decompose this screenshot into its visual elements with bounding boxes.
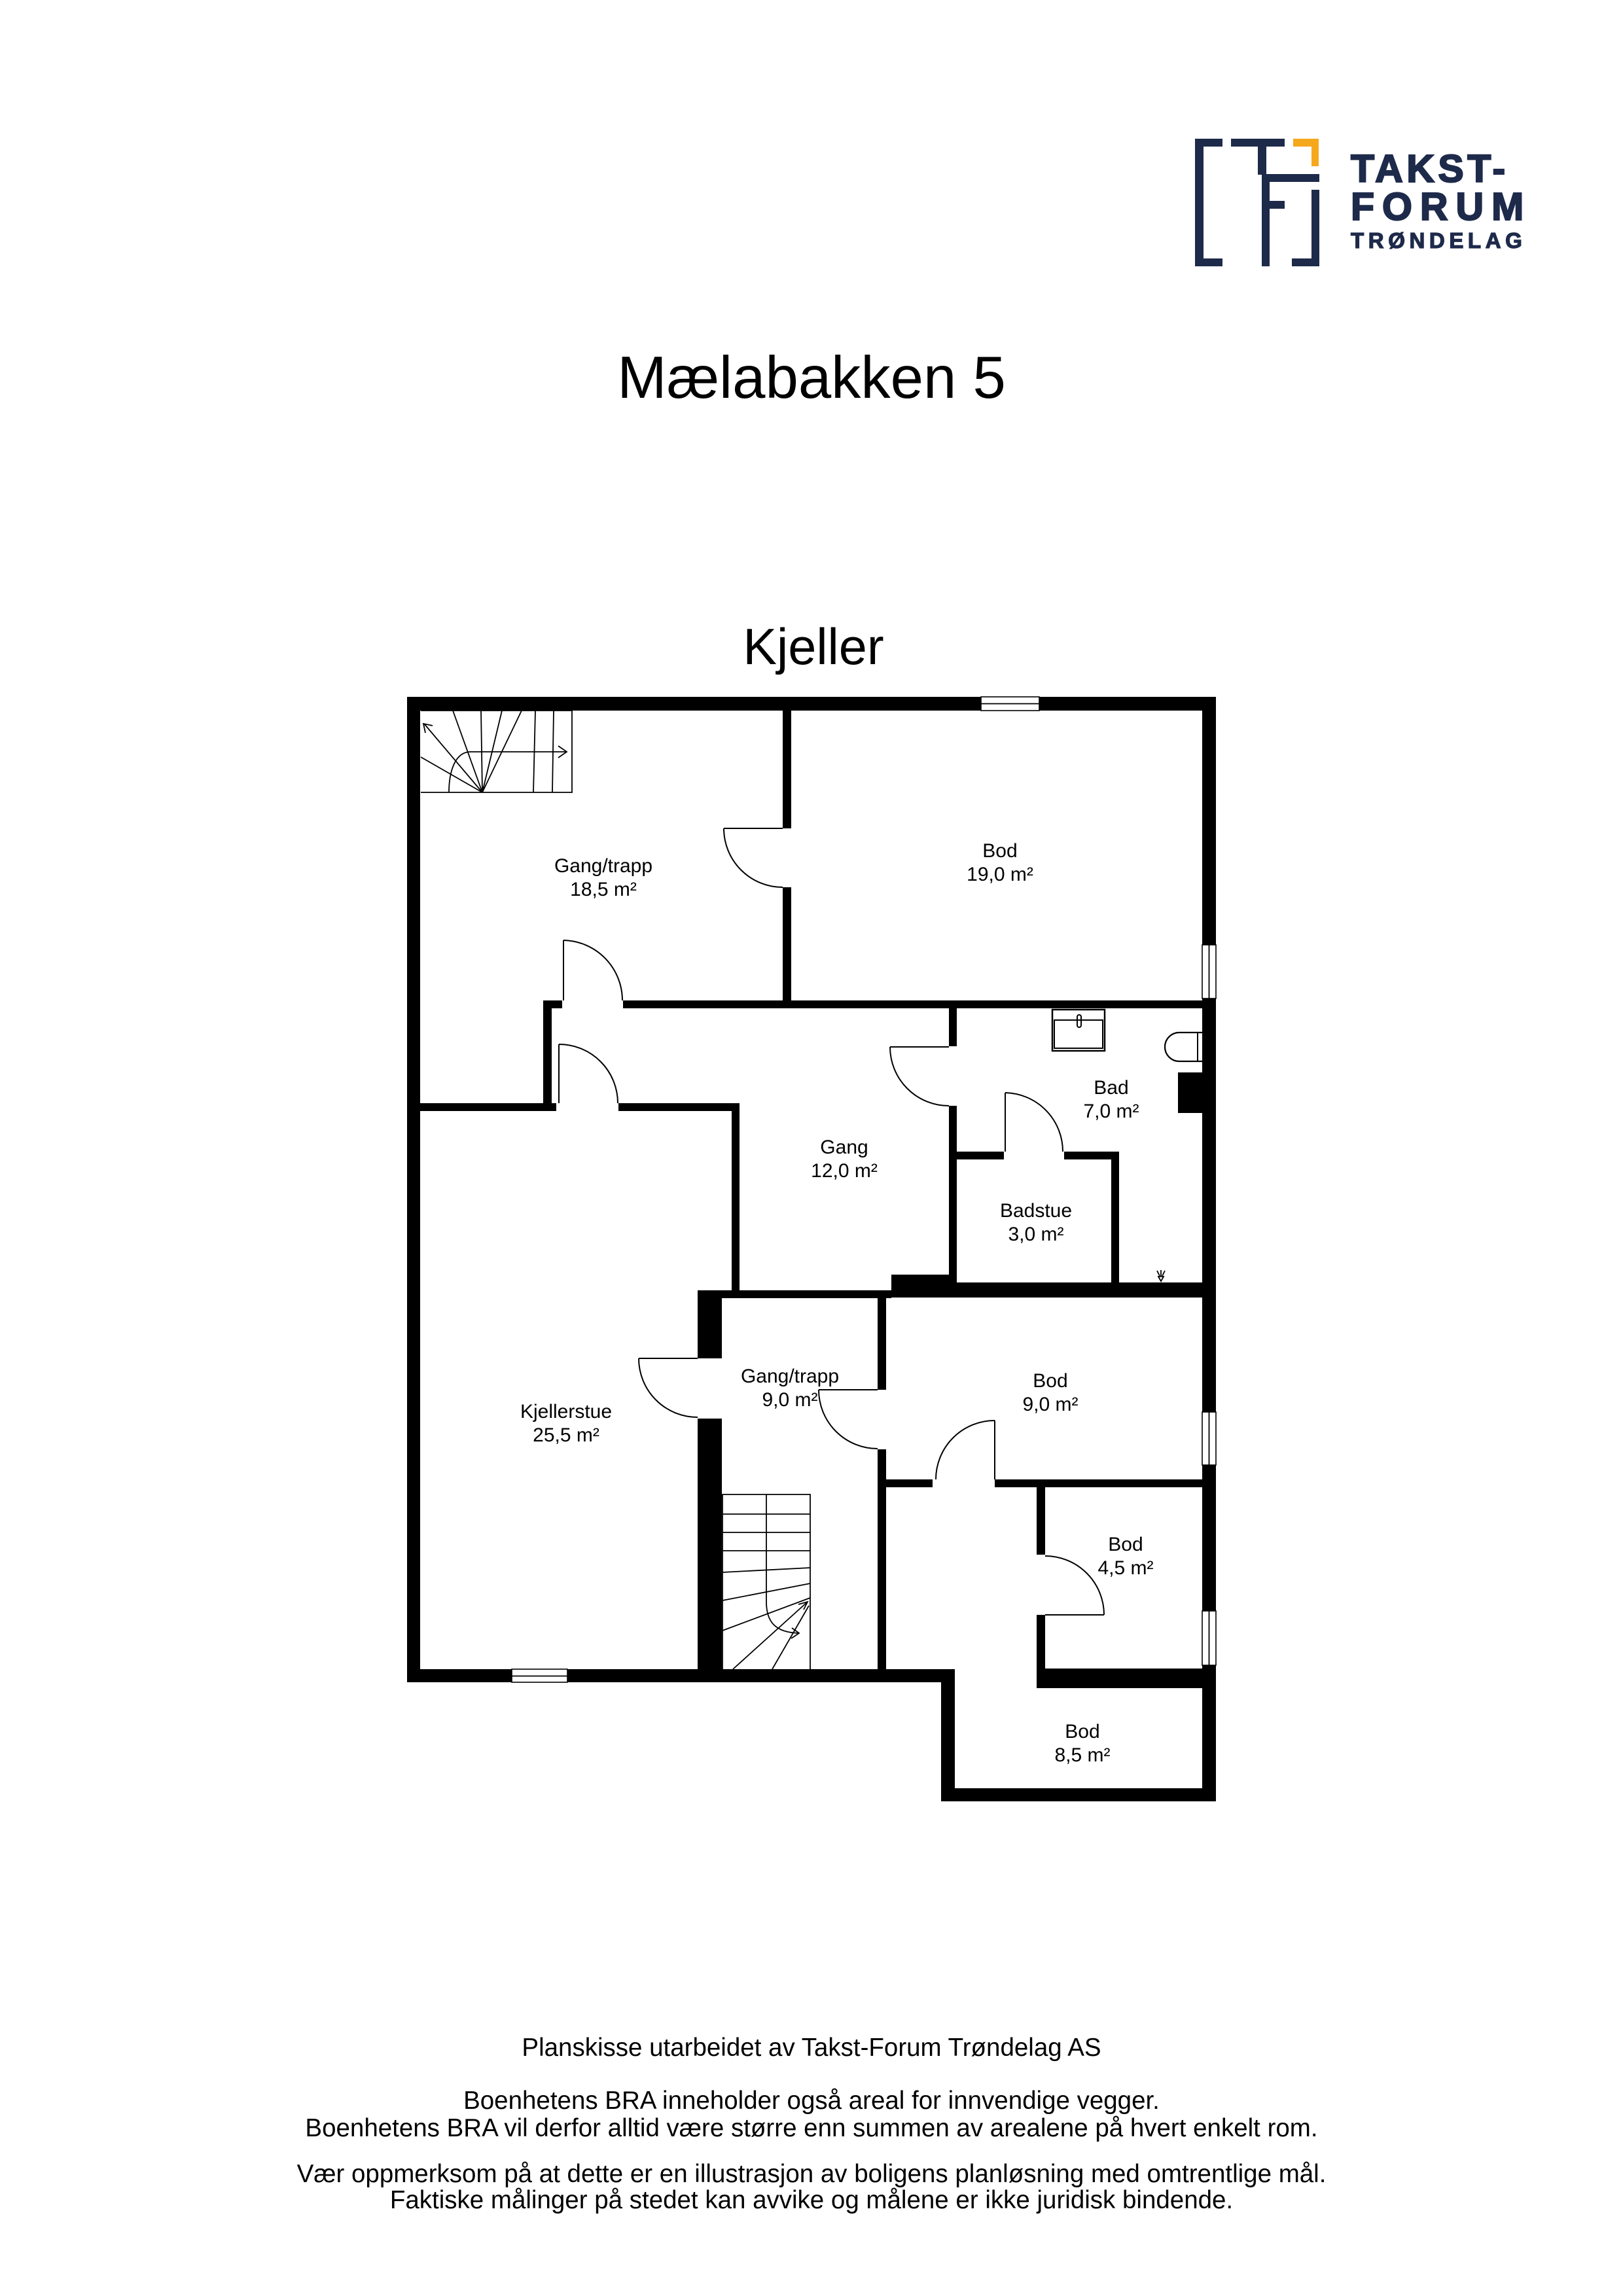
svg-text:Badstue: Badstue (1000, 1200, 1072, 1222)
svg-text:Gang/trapp: Gang/trapp (554, 855, 652, 877)
svg-text:Gang: Gang (820, 1137, 868, 1158)
svg-text:Bod: Bod (1065, 1721, 1099, 1742)
svg-text:7,0 m²: 7,0 m² (1083, 1101, 1139, 1122)
svg-text:19,0 m²: 19,0 m² (967, 864, 1033, 885)
svg-text:8,5 m²: 8,5 m² (1054, 1744, 1110, 1766)
svg-text:9,0 m²: 9,0 m² (1022, 1394, 1078, 1415)
svg-text:Bad: Bad (1094, 1077, 1128, 1099)
svg-text:Gang/trapp: Gang/trapp (741, 1366, 839, 1387)
svg-text:18,5 m²: 18,5 m² (570, 879, 637, 900)
svg-text:9,0 m²: 9,0 m² (762, 1389, 817, 1411)
svg-text:Kjeller: Kjeller (743, 619, 883, 675)
svg-text:Vær oppmerksom på at dette er: Vær oppmerksom på at dette er en illustr… (297, 2160, 1327, 2188)
svg-text:TAKST-: TAKST- (1351, 147, 1509, 190)
svg-text:Faktiske målinger på stedet ka: Faktiske målinger på stedet kan avvike o… (390, 2186, 1233, 2214)
svg-text:Bod: Bod (982, 840, 1017, 862)
svg-text:Bod: Bod (1108, 1534, 1143, 1555)
svg-text:Kjellerstue: Kjellerstue (520, 1401, 612, 1422)
svg-text:12,0 m²: 12,0 m² (811, 1160, 878, 1182)
svg-text:25,5 m²: 25,5 m² (533, 1424, 599, 1446)
svg-text:Bod: Bod (1033, 1370, 1067, 1392)
svg-text:3,0 m²: 3,0 m² (1008, 1224, 1063, 1245)
svg-text:Boenhetens BRA vil derfor allt: Boenhetens BRA vil derfor alltid være st… (305, 2114, 1317, 2142)
svg-text:4,5 m²: 4,5 m² (1097, 1557, 1153, 1579)
svg-text:TRØNDELAG: TRØNDELAG (1351, 228, 1526, 253)
svg-text:Planskisse utarbeidet av Takst: Planskisse utarbeidet av Takst-Forum Trø… (522, 2034, 1101, 2062)
svg-text:FORUM: FORUM (1351, 185, 1531, 228)
svg-text:Mælabakken 5: Mælabakken 5 (617, 345, 1006, 411)
svg-text:Boenhetens BRA inneholder også: Boenhetens BRA inneholder også areal for… (463, 2087, 1160, 2115)
